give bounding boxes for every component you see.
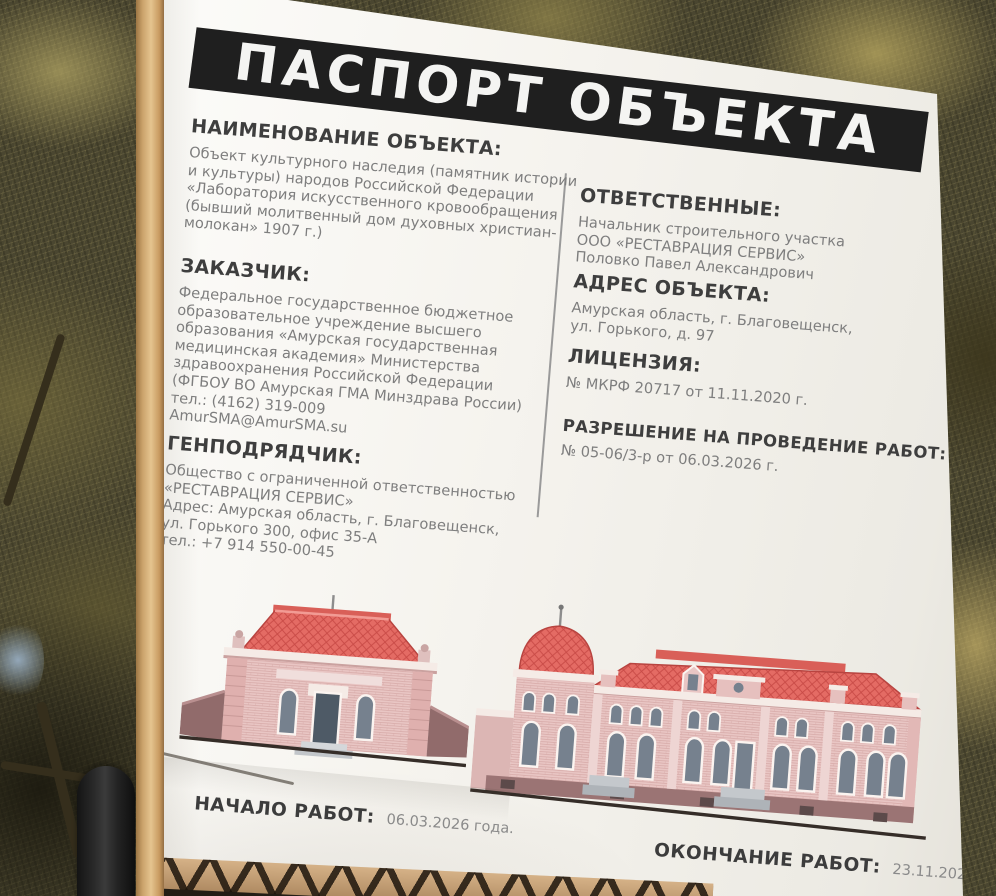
- background-highlight: [0, 618, 44, 702]
- wooden-post: [136, 0, 166, 896]
- section-customer: ЗАКАЗЧИК: Федеральное государственное бю…: [169, 255, 549, 452]
- pine-branch: [2, 333, 65, 507]
- section-object-name: НАИМЕНОВАНИЕ ОБЪЕКТА: Объект культурного…: [183, 115, 559, 259]
- section-general-contractor: ГЕНПОДРЯДЧИК: Общество с ограниченной от…: [159, 432, 535, 576]
- building-elevation-left: [178, 582, 479, 781]
- building-elevation-right: [467, 596, 941, 860]
- metal-bollard: [77, 766, 135, 896]
- works-end-value: 23.11.2027 года.: [892, 862, 996, 888]
- section-work-permit: РАЗРЕШЕНИЕ НА ПРОВЕДЕНИЕ РАБОТ: № 05-06/…: [560, 416, 917, 486]
- construction-sign-photo: ПАСПОРТ ОБЪЕКТА НАИМЕНОВАНИЕ ОБЪЕКТА: Об…: [0, 0, 996, 896]
